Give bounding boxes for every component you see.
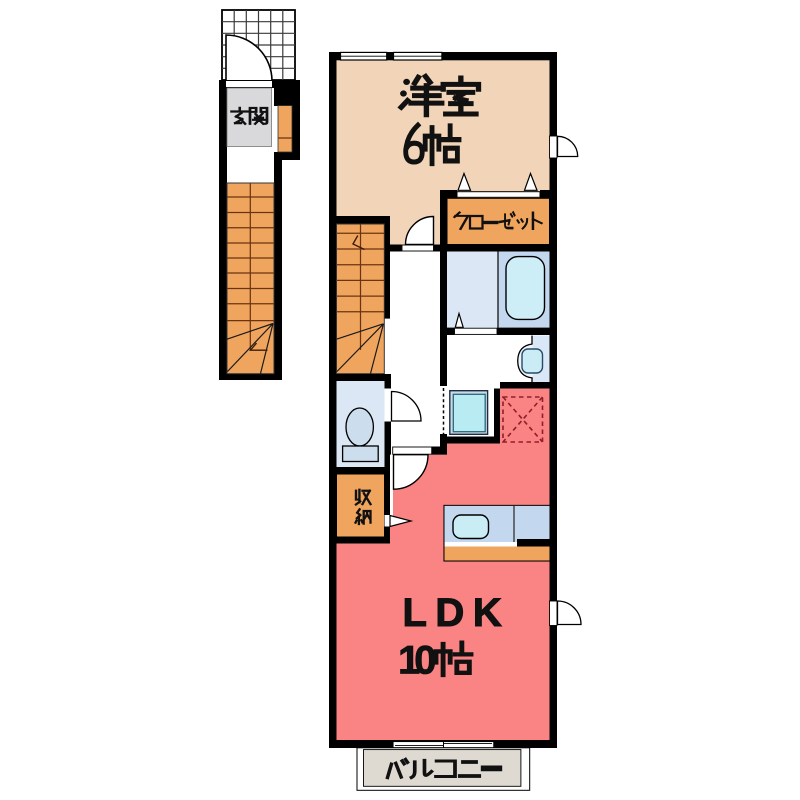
svg-text:10: 10 bbox=[398, 639, 435, 683]
svg-text:LDK: LDK bbox=[403, 591, 511, 635]
